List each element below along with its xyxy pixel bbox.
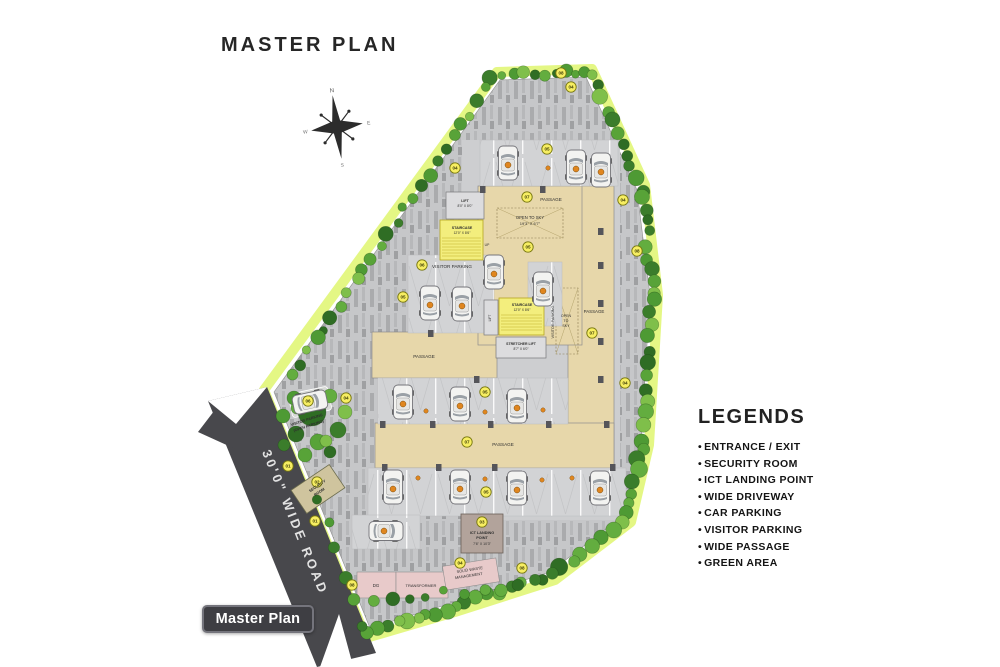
plan-label: ICT LANDING — [470, 531, 495, 535]
marker-08: 08 — [556, 68, 566, 78]
tree — [470, 94, 484, 108]
tree — [454, 117, 467, 130]
master-plan-badge[interactable]: Master Plan — [202, 605, 314, 633]
tree — [441, 144, 452, 155]
marker-08: 08 — [347, 580, 357, 590]
stall-chip — [416, 476, 420, 480]
plan-label: 12'0" X 8'6" — [514, 308, 532, 312]
stall-chip — [483, 477, 487, 481]
tree — [439, 586, 447, 594]
legend-list: •ENTRANCE / EXIT•SECURITY ROOM•ICT LANDI… — [698, 441, 918, 569]
tree — [336, 301, 347, 312]
marker-04: 04 — [620, 378, 630, 388]
tree — [638, 404, 654, 420]
svg-text:08: 08 — [558, 71, 564, 76]
tree — [517, 66, 530, 79]
master-plan-page: MASTER PLAN — [0, 0, 1000, 667]
legend-item: •VISITOR PARKING — [698, 524, 918, 536]
pillar — [598, 228, 604, 235]
plan-label: PASSAGE — [584, 309, 605, 314]
parking-stall-row — [368, 468, 626, 516]
pillar — [610, 464, 616, 471]
tree — [338, 405, 352, 419]
tree — [414, 613, 425, 624]
car-icon — [506, 471, 528, 505]
svg-text:04: 04 — [452, 166, 458, 171]
legend-panel: LEGENDS •ENTRANCE / EXIT•SECURITY ROOM•I… — [698, 406, 918, 574]
plan-label: DG — [373, 583, 380, 588]
car-icon — [451, 287, 473, 321]
svg-text:01: 01 — [285, 464, 291, 469]
tree — [295, 360, 306, 371]
tree — [530, 70, 540, 80]
tree — [298, 448, 312, 462]
marker-06: 06 — [303, 396, 313, 406]
tree — [624, 474, 639, 489]
car-icon — [369, 520, 403, 542]
svg-text:06: 06 — [419, 263, 425, 268]
tree — [587, 70, 597, 80]
tree — [287, 369, 298, 380]
tree — [357, 621, 367, 631]
stall-chip — [540, 478, 544, 482]
marker-04: 04 — [455, 558, 465, 568]
tree — [571, 70, 579, 78]
plan-label: 7'6" X 10'3" — [473, 542, 492, 546]
car-icon — [565, 150, 587, 184]
tree — [546, 567, 558, 579]
marker-05: 05 — [542, 144, 552, 154]
car-icon — [419, 286, 441, 320]
tree — [433, 156, 444, 167]
tree — [415, 179, 427, 191]
tree — [480, 585, 491, 596]
tree — [276, 409, 290, 423]
svg-text:05: 05 — [400, 295, 406, 300]
plan-label: 8'7" X 6'0" — [514, 347, 530, 351]
pillar — [598, 376, 604, 383]
plan-label: SKY — [562, 324, 570, 328]
pillar — [598, 262, 604, 269]
pillar — [546, 421, 552, 428]
tree — [302, 346, 310, 354]
tree — [311, 330, 326, 345]
tree — [324, 446, 336, 458]
tree — [605, 112, 620, 127]
plan-label: VISITOR PARKING — [551, 305, 555, 338]
svg-text:04: 04 — [343, 396, 349, 401]
tree — [634, 189, 649, 204]
svg-text:07: 07 — [464, 440, 470, 445]
tree — [481, 83, 490, 92]
tree — [398, 203, 407, 212]
plan-label: PASSAGE — [492, 442, 514, 447]
legend-heading: LEGENDS — [698, 406, 918, 429]
svg-text:05: 05 — [482, 390, 488, 395]
plan-label: LIFT — [488, 315, 492, 322]
marker-03: 03 — [477, 517, 487, 527]
tree — [624, 160, 635, 171]
compass-rose: N E S W — [298, 84, 377, 174]
car-icon — [483, 255, 505, 289]
legend-item: •SECURITY ROOM — [698, 458, 918, 470]
svg-text:04: 04 — [622, 381, 628, 386]
tree — [640, 355, 656, 371]
svg-text:07: 07 — [589, 331, 595, 336]
compass-star — [307, 92, 367, 163]
plan-label: 8'0" X 8'0" — [458, 204, 474, 208]
pillar — [604, 421, 610, 428]
car-icon — [590, 153, 612, 187]
compass-e-label: E — [367, 120, 372, 126]
marker-05: 05 — [480, 387, 490, 397]
marker-06: 06 — [417, 260, 427, 270]
car-icon — [497, 146, 519, 180]
tree — [459, 589, 469, 599]
tree — [322, 311, 336, 325]
marker-05: 05 — [523, 242, 533, 252]
tree — [569, 556, 581, 568]
car-icon — [449, 387, 471, 421]
tree — [440, 604, 455, 619]
stall-chip — [483, 410, 487, 414]
plan-label: STAIRCASE — [452, 226, 473, 230]
tree — [648, 275, 661, 288]
pillar — [430, 421, 436, 428]
svg-text:08: 08 — [349, 583, 355, 588]
compass-w-label: W — [303, 129, 309, 136]
tree — [592, 89, 608, 105]
stall-chip — [570, 476, 574, 480]
tree — [364, 253, 376, 265]
plan-label: STRETCHER LIFT — [506, 342, 537, 346]
plan-label: 12'0" X 8'6" — [454, 231, 472, 235]
pillar — [598, 338, 604, 345]
tree — [622, 150, 633, 161]
svg-text:04: 04 — [457, 561, 463, 566]
tree — [330, 422, 346, 438]
pillar — [480, 186, 486, 193]
tree — [328, 542, 339, 553]
tree — [495, 584, 508, 597]
tree — [320, 435, 332, 447]
marker-04: 04 — [341, 393, 351, 403]
tree — [394, 219, 403, 228]
tree — [394, 616, 405, 627]
svg-text:06: 06 — [305, 399, 311, 404]
tree — [449, 129, 460, 140]
tree — [386, 592, 400, 606]
tree — [377, 241, 386, 250]
legend-item: •ENTRANCE / EXIT — [698, 441, 918, 453]
svg-text:08: 08 — [519, 566, 525, 571]
tree — [539, 70, 550, 81]
legend-item: •WIDE PASSAGE — [698, 541, 918, 553]
tree — [611, 127, 624, 140]
legend-item: •GREEN AREA — [698, 557, 918, 569]
stall-chip — [541, 408, 545, 412]
plan-label: LIFT — [461, 199, 469, 203]
plan-label: TRANSFORMER — [406, 583, 437, 588]
pillar — [474, 376, 480, 383]
tree — [641, 369, 653, 381]
tree — [512, 579, 524, 591]
pillar — [380, 421, 386, 428]
tree — [618, 139, 629, 150]
svg-text:07: 07 — [524, 195, 530, 200]
car-icon — [589, 471, 611, 505]
legend-item: •CAR PARKING — [698, 507, 918, 519]
legend-item: •ICT LANDING POINT — [698, 474, 918, 486]
tree — [529, 574, 540, 585]
marker-07: 07 — [522, 192, 532, 202]
svg-text:05: 05 — [544, 147, 550, 152]
svg-text:04: 04 — [620, 198, 626, 203]
tree — [585, 539, 600, 554]
tree — [421, 593, 429, 601]
pillar — [598, 300, 604, 307]
svg-text:05: 05 — [525, 245, 531, 250]
tree — [408, 193, 418, 203]
tree — [465, 112, 474, 121]
plan-label: PASSAGE — [413, 354, 435, 359]
plan-label: VISITOR PARKING — [432, 264, 472, 269]
plan-label: POINT — [476, 536, 488, 540]
car-icon — [382, 470, 404, 504]
plan-label: PASSAGE — [540, 197, 562, 202]
plan-label: UP — [485, 243, 490, 247]
svg-text:03: 03 — [479, 520, 485, 525]
stall-chip — [546, 166, 550, 170]
tree — [642, 305, 655, 318]
marker-08: 08 — [632, 246, 642, 256]
plan-label: OPEN TO SKY — [516, 215, 544, 220]
svg-text:05: 05 — [483, 490, 489, 495]
marker-04: 04 — [618, 195, 628, 205]
car-icon — [392, 385, 414, 419]
marker-04: 04 — [566, 82, 576, 92]
tree — [341, 288, 351, 298]
svg-text:04: 04 — [568, 85, 574, 90]
tree — [640, 328, 654, 342]
tree — [645, 225, 655, 235]
car-icon — [449, 470, 471, 504]
tree — [368, 595, 379, 606]
tree — [636, 417, 651, 432]
car-icon — [506, 389, 528, 423]
legend-item: •WIDE DRIVEWAY — [698, 491, 918, 503]
svg-text:08: 08 — [634, 249, 640, 254]
tree — [405, 595, 414, 604]
tree — [348, 593, 360, 605]
marker-01: 01 — [310, 516, 320, 526]
pillar — [540, 186, 546, 193]
marker-07: 07 — [587, 328, 597, 338]
tree — [353, 272, 365, 284]
pillar — [436, 464, 442, 471]
compass-s-label: S — [340, 162, 345, 168]
marker-01: 01 — [283, 461, 293, 471]
marker-07: 07 — [462, 437, 472, 447]
marker-08: 08 — [517, 563, 527, 573]
marker-04: 04 — [450, 163, 460, 173]
svg-text:01: 01 — [312, 519, 318, 524]
tree — [647, 292, 661, 306]
tree — [643, 215, 653, 225]
tree — [325, 518, 334, 527]
plan-label: 19'3" X 6'7" — [520, 221, 541, 226]
stall-chip — [424, 409, 428, 413]
tree — [278, 439, 290, 451]
tree — [378, 226, 393, 241]
marker-05: 05 — [398, 292, 408, 302]
tree — [312, 495, 321, 504]
compass-n-label: N — [329, 88, 334, 95]
tree — [645, 262, 660, 277]
tree — [498, 71, 506, 79]
pillar — [488, 421, 494, 428]
plan-label: STAIRCASE — [512, 303, 533, 307]
marker-05: 05 — [481, 487, 491, 497]
pillar — [428, 330, 434, 337]
car-icon — [532, 272, 554, 306]
plan-label: TO — [564, 319, 569, 323]
plan-label: OPEN — [561, 314, 572, 318]
pillar — [492, 464, 498, 471]
tree — [628, 170, 644, 186]
